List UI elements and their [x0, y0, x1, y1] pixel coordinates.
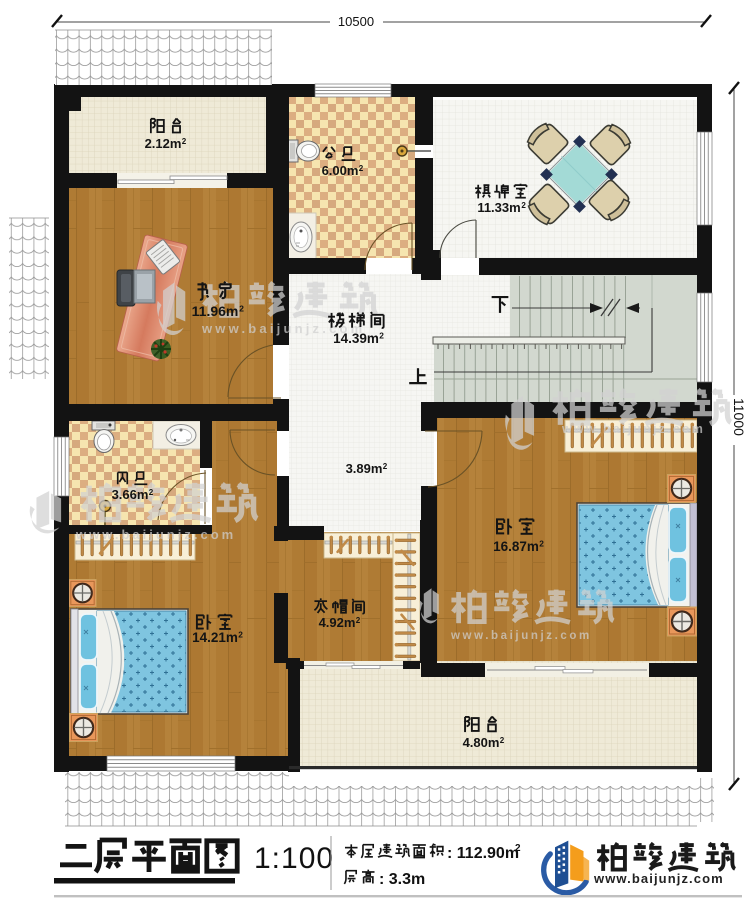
svg-text:11.33m: 11.33m	[477, 200, 520, 215]
svg-text:www.baijunjz.com: www.baijunjz.com	[593, 871, 724, 886]
svg-text:: 3.3m: : 3.3m	[379, 871, 425, 888]
svg-text:11.96m: 11.96m	[192, 303, 239, 319]
svg-text:: 112.90m: : 112.90m	[447, 845, 519, 862]
svg-text:4.80m: 4.80m	[463, 735, 500, 750]
svg-text:www.baijunjz.com: www.baijunjz.com	[450, 630, 592, 642]
svg-text:4.92m: 4.92m	[319, 615, 356, 630]
svg-text:2.12m: 2.12m	[145, 136, 182, 151]
svg-text:2: 2	[521, 201, 526, 210]
svg-text:14.21m: 14.21m	[192, 630, 238, 645]
svg-text:www.baijunjz.com: www.baijunjz.com	[75, 527, 236, 542]
svg-text:2: 2	[379, 331, 384, 341]
svg-text:3.66m: 3.66m	[112, 487, 149, 502]
svg-text:2: 2	[359, 164, 364, 173]
svg-text:2: 2	[182, 137, 187, 146]
svg-text:2: 2	[539, 539, 544, 549]
svg-text:1:100: 1:100	[254, 842, 334, 875]
svg-text:2: 2	[515, 843, 521, 854]
svg-text:11000: 11000	[731, 398, 747, 436]
svg-text:10500: 10500	[338, 14, 374, 29]
svg-text:14.39m: 14.39m	[333, 331, 379, 346]
svg-text:2: 2	[238, 630, 243, 640]
svg-text:2: 2	[356, 616, 361, 625]
svg-text:16.87m: 16.87m	[493, 539, 539, 554]
svg-text:2: 2	[383, 462, 388, 471]
svg-text:6.00m: 6.00m	[322, 163, 359, 178]
svg-text:2: 2	[149, 488, 154, 497]
svg-text:2: 2	[500, 736, 505, 745]
svg-text:www.baijunjz.com: www.baijunjz.com	[561, 422, 705, 436]
svg-text:2: 2	[239, 304, 244, 314]
svg-text:3.89m: 3.89m	[346, 461, 383, 476]
